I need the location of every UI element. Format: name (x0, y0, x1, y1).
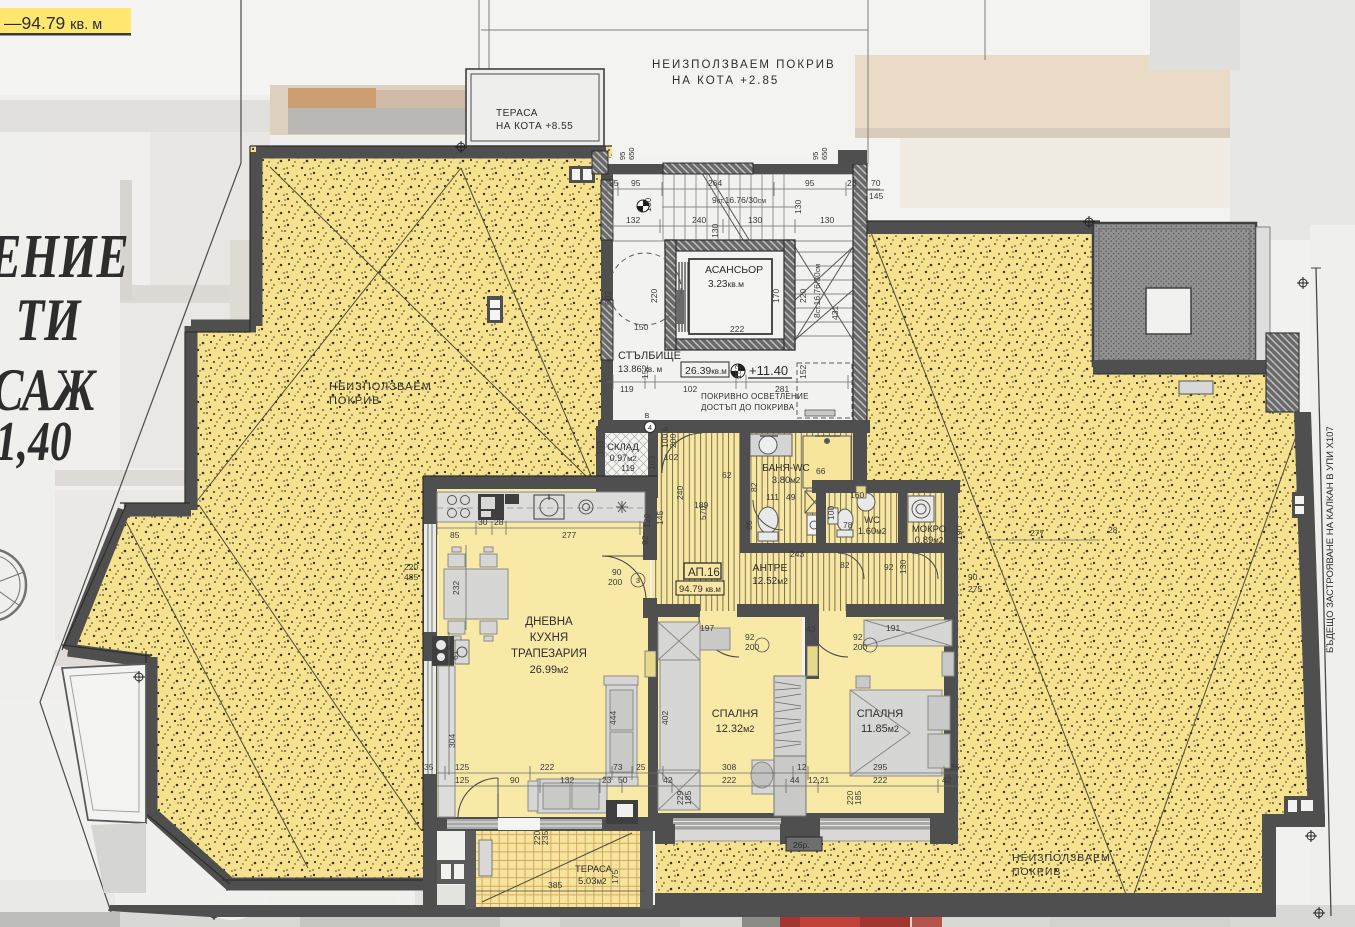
svg-text:КУХНЯ: КУХНЯ (530, 632, 568, 644)
svg-text:ТЕРАСА: ТЕРАСА (575, 864, 613, 875)
svg-text:ПОКРИВНО ОСВЕТЛЕНИЕ: ПОКРИВНО ОСВЕТЛЕНИЕ (701, 392, 809, 401)
svg-text:222: 222 (540, 762, 554, 772)
svg-text:ЕНИЕ: ЕНИЕ (0, 222, 129, 291)
svg-text:95: 95 (811, 152, 820, 160)
svg-text:1,40: 1,40 (0, 410, 72, 472)
svg-text:26р.: 26р. (793, 840, 810, 850)
svg-text:26.39кв.м: 26.39кв.м (685, 365, 727, 377)
svg-text:130: 130 (710, 224, 720, 238)
svg-text:ТРАПЕЗАРИЯ: ТРАПЕЗАРИЯ (511, 648, 587, 660)
svg-text:35: 35 (424, 762, 434, 772)
svg-text:90: 90 (612, 567, 622, 577)
svg-text:42: 42 (942, 775, 952, 785)
svg-text:130: 130 (793, 200, 803, 214)
svg-text:200: 200 (608, 577, 622, 587)
svg-text:132: 132 (626, 215, 640, 225)
svg-text:95: 95 (618, 152, 627, 160)
svg-text:11.85м2: 11.85м2 (861, 723, 899, 735)
svg-text:78: 78 (843, 520, 853, 530)
svg-text:9: 9 (444, 645, 454, 650)
svg-text:ДНЕВНА: ДНЕВНА (525, 616, 573, 628)
svg-text:222: 222 (722, 775, 736, 785)
svg-text:30: 30 (478, 517, 488, 527)
svg-text:23: 23 (602, 775, 612, 785)
svg-text:485: 485 (404, 572, 418, 582)
svg-text:БЪДЕЩО ЗАСТРОЯВАНЕ НА КАЛКАН В: БЪДЕЩО ЗАСТРОЯВАНЕ НА КАЛКАН В УПИ Х107 (1325, 426, 1336, 653)
svg-text:СКЛАД: СКЛАД (607, 442, 639, 453)
svg-text:125: 125 (455, 762, 469, 772)
svg-text:119: 119 (620, 384, 634, 394)
svg-text:444: 444 (608, 711, 618, 725)
svg-text:0.89м2: 0.89м2 (915, 535, 944, 546)
svg-text:92: 92 (884, 562, 894, 572)
svg-text:МОКРО: МОКРО (912, 524, 946, 535)
svg-text:НЕИЗПОЛЗВАЕМ: НЕИЗПОЛЗВАЕМ (329, 381, 432, 393)
svg-text:НЕИЗПОЛЗВАЕМ ПОКРИВ: НЕИЗПОЛЗВАЕМ ПОКРИВ (652, 59, 836, 71)
svg-text:23: 23 (847, 178, 857, 188)
svg-text:35: 35 (950, 762, 960, 772)
svg-text:160: 160 (850, 490, 864, 500)
svg-text:3: 3 (636, 576, 640, 585)
svg-text:650: 650 (627, 147, 636, 160)
svg-text:502: 502 (603, 291, 613, 305)
svg-text:АНТРЕ: АНТРЕ (752, 562, 787, 574)
svg-text:281: 281 (775, 384, 789, 394)
svg-text:12: 12 (797, 762, 807, 772)
svg-text:232: 232 (451, 581, 461, 595)
svg-text:42: 42 (663, 775, 673, 785)
svg-text:92: 92 (640, 535, 650, 545)
svg-text:120: 120 (642, 514, 652, 528)
svg-text:28: 28 (494, 517, 504, 527)
svg-text:ДОСТЪП ДО ПОКРИВА: ДОСТЪП ДО ПОКРИВА (701, 403, 795, 412)
svg-text:43: 43 (806, 624, 816, 634)
svg-text:ПОКРИВ: ПОКРИВ (1012, 866, 1061, 878)
svg-text:ТИ: ТИ (16, 286, 83, 353)
svg-text:90: 90 (510, 775, 520, 785)
svg-text:132: 132 (560, 775, 574, 785)
svg-text:200: 200 (668, 434, 678, 448)
svg-text:44: 44 (790, 775, 800, 785)
svg-text:85: 85 (450, 530, 460, 540)
svg-text:220: 220 (404, 562, 418, 572)
svg-text:150: 150 (634, 322, 648, 332)
svg-text:111: 111 (766, 492, 779, 502)
svg-text:152: 152 (733, 365, 743, 379)
svg-text:145: 145 (655, 511, 665, 525)
svg-text:240: 240 (675, 486, 685, 500)
svg-text:82: 82 (749, 482, 759, 492)
svg-text:25: 25 (636, 762, 646, 772)
svg-text:12.52м2: 12.52м2 (752, 576, 788, 587)
svg-text:92: 92 (745, 632, 755, 642)
svg-text:570: 570 (698, 506, 708, 520)
svg-text:26.99м2: 26.99м2 (530, 664, 569, 676)
svg-text:197: 197 (700, 623, 714, 633)
svg-text:61: 61 (450, 650, 460, 660)
svg-text:25: 25 (609, 178, 619, 188)
svg-text:130: 130 (898, 560, 908, 574)
svg-text:95: 95 (631, 178, 641, 188)
svg-text:50: 50 (618, 775, 628, 785)
svg-text:12.32м2: 12.32м2 (716, 723, 755, 735)
svg-text:385: 385 (548, 880, 562, 890)
svg-text:0.97м2: 0.97м2 (610, 453, 637, 463)
svg-text:НА КОТА +8.55: НА КОТА +8.55 (496, 121, 573, 132)
svg-text:В: В (645, 413, 650, 420)
svg-text:185: 185 (853, 791, 863, 805)
svg-text:102: 102 (664, 452, 678, 462)
svg-text:73: 73 (613, 762, 623, 772)
svg-text:86: 86 (744, 520, 754, 530)
svg-text:ПОКРИВ: ПОКРИВ (329, 395, 380, 407)
svg-text:АСАНСЬОР: АСАНСЬОР (705, 264, 763, 276)
svg-text:191: 191 (886, 623, 900, 633)
svg-text:5.03м2: 5.03м2 (578, 876, 607, 887)
svg-text:12,21: 12,21 (808, 775, 830, 785)
svg-text:304: 304 (447, 734, 457, 748)
svg-text:WC: WC (864, 515, 880, 526)
svg-text:94.79 кв.м: 94.79 кв.м (679, 584, 721, 595)
svg-text:130: 130 (820, 215, 834, 225)
svg-text:222: 222 (873, 775, 887, 785)
svg-text:+11.40: +11.40 (749, 363, 788, 378)
svg-text:170: 170 (771, 289, 781, 303)
svg-text:СТЪЛБИЩЕ: СТЪЛБИЩЕ (618, 350, 681, 362)
svg-text:3.23кв.м: 3.23кв.м (708, 279, 744, 290)
svg-text:4: 4 (648, 423, 652, 432)
svg-text:650: 650 (820, 147, 829, 160)
svg-text:185: 185 (683, 791, 693, 805)
svg-text:277: 277 (1030, 528, 1044, 538)
svg-text:243: 243 (790, 549, 804, 559)
svg-text:ТЕРАСА: ТЕРАСА (496, 108, 538, 119)
svg-text:222: 222 (730, 324, 744, 334)
svg-text:3.80м2: 3.80м2 (772, 475, 801, 486)
svg-text:НЕИЗПОЛЗВАЕМ: НЕИЗПОЛЗВАЕМ (1012, 852, 1111, 864)
svg-text:1.60м2: 1.60м2 (858, 526, 887, 537)
svg-text:152: 152 (640, 365, 650, 379)
svg-text:220: 220 (649, 289, 659, 303)
svg-text:152: 152 (798, 365, 808, 379)
svg-text:28: 28 (1108, 525, 1118, 535)
svg-text:АП.16: АП.16 (688, 567, 720, 579)
svg-text:90: 90 (968, 572, 978, 582)
svg-text:95: 95 (805, 178, 815, 188)
svg-text:130: 130 (748, 215, 762, 225)
svg-text:240: 240 (692, 215, 706, 225)
svg-text:92: 92 (853, 632, 863, 642)
svg-text:66: 66 (816, 466, 826, 476)
svg-text:277: 277 (562, 530, 576, 540)
svg-text:431: 431 (830, 306, 840, 320)
svg-text:103: 103 (595, 441, 605, 455)
svg-text:49: 49 (786, 492, 796, 502)
svg-text:175: 175 (610, 870, 620, 884)
svg-text:102: 102 (683, 384, 697, 394)
svg-text:295: 295 (873, 762, 887, 772)
svg-text:190: 190 (954, 526, 964, 540)
svg-text:СПАЛНЯ: СПАЛНЯ (857, 708, 904, 720)
svg-text:82: 82 (840, 560, 850, 570)
svg-text:БАНЯ-WC: БАНЯ-WC (762, 463, 809, 474)
svg-text:235: 235 (540, 831, 550, 845)
svg-text:145: 145 (869, 191, 883, 201)
svg-text:308: 308 (722, 762, 736, 772)
svg-text:70: 70 (871, 178, 881, 188)
svg-text:220: 220 (798, 289, 808, 303)
svg-text:402: 402 (660, 711, 670, 725)
svg-text:125: 125 (455, 775, 469, 785)
svg-text:СПАЛНЯ: СПАЛНЯ (712, 708, 759, 720)
svg-text:103: 103 (647, 456, 657, 470)
svg-text:275: 275 (968, 584, 982, 594)
svg-text:НА КОТА +2.85: НА КОТА +2.85 (672, 75, 779, 87)
svg-text:100: 100 (826, 506, 836, 520)
svg-text:264: 264 (708, 178, 722, 188)
svg-text:62: 62 (722, 470, 732, 480)
svg-text:119: 119 (621, 463, 635, 473)
